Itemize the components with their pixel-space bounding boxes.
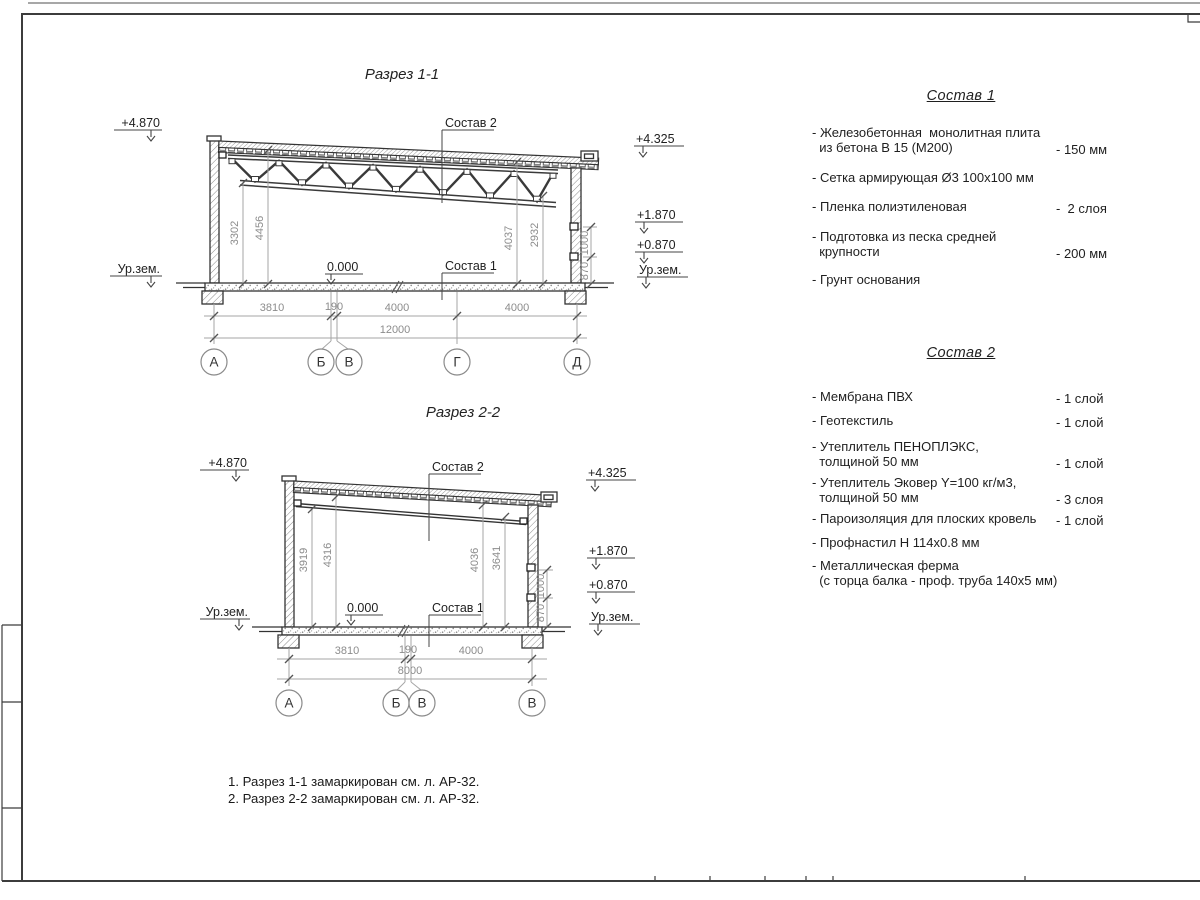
vdim-3302: 3302 [229, 221, 241, 245]
comp2-item5-value: - 1 слой [1056, 514, 1110, 529]
sostav1-label-2: Состав 1 [432, 601, 484, 615]
vdim-1000-2: 1000 [535, 574, 547, 598]
section-1-1-title: Разрез 1-1 [365, 66, 439, 83]
sostav2-label-2: Состав 2 [432, 460, 484, 474]
roof-assembly-2 [293, 481, 551, 507]
comp2-item3-value: - 1 слой [1056, 457, 1110, 472]
vdim-870-2: 870 [535, 604, 547, 622]
elev-r2: +0.870 [637, 238, 676, 252]
elev-r2-2: +0.870 [589, 578, 628, 592]
hdim-190-2: 190 [399, 644, 417, 656]
section-2-2: Разрез 2-2 [200, 404, 640, 716]
ground-left-label-2: Ур.зем. [206, 605, 248, 619]
horizontal-dims-1-1: 3810 190 4000 4000 12000 А Б В Г Д [201, 292, 590, 375]
hdim-4000b: 4000 [505, 302, 529, 314]
list-item: - Геотекстиль - 1 слой [812, 414, 1110, 430]
list-item: - Утеплитель ПЕНОПЛЭКС, толщиной 50 мм -… [812, 440, 1110, 471]
comp1-item5-name: - Грунт основания [812, 273, 1110, 288]
vdim-4456: 4456 [254, 216, 266, 240]
elev-r1-2: +1.870 [589, 544, 628, 558]
list-item: - Железобетонная монолитная плита из бет… [812, 126, 1110, 157]
comp2-item1-value: - 1 слой [1056, 392, 1110, 407]
ground-right-label: Ур.зем. [639, 263, 681, 277]
grid-letter-b: Б [317, 355, 326, 370]
vdim-1000: 1000 [579, 231, 591, 255]
list-item: - Утеплитель Эковер Y=100 кг/м3, толщино… [812, 476, 1110, 507]
comp2-item6-name: - Профнастил Н 114x0.8 мм [812, 536, 1110, 551]
list-item: - Сетка армирующая Ø3 100x100 мм [812, 171, 1110, 187]
list-item: - Металлическая ферма (с торца балка - п… [812, 559, 1110, 590]
elev-tl-2: +4.870 [208, 456, 247, 470]
hdim-3810-2: 3810 [335, 645, 359, 657]
elev-r1: +1.870 [637, 208, 676, 222]
grid-bubbles-2-2 [276, 690, 545, 716]
list-item: - Пароизоляция для плоских кровель - 1 с… [812, 512, 1110, 528]
grid-letter-v2-2: В [527, 696, 536, 711]
vdim-4316: 4316 [322, 543, 334, 567]
grid-letter-g: Г [453, 355, 461, 370]
comp1-item4-value: - 200 мм [1056, 247, 1110, 262]
section-1-1-building [176, 136, 614, 304]
vdim-870: 870 [579, 262, 591, 280]
comp2-item7-name: - Металлическая ферма (с торца балка - п… [812, 559, 1110, 588]
elev-tl: +4.870 [121, 116, 160, 130]
comp1-item2-name: - Сетка армирующая Ø3 100x100 мм [812, 171, 1110, 186]
list-item: - Подготовка из песка средней крупности … [812, 230, 1110, 261]
zero-level-label-2: 0.000 [347, 601, 378, 615]
vdim-4037: 4037 [503, 226, 515, 250]
section-2-2-title: Разрез 2-2 [426, 404, 501, 421]
grid-letter-d: Д [572, 355, 581, 370]
grid-letter-v: В [344, 355, 353, 370]
comp2-item2-value: - 1 слой [1056, 416, 1110, 431]
sostav2-label: Состав 2 [445, 116, 497, 130]
horizontal-dims-2-2: 3810 190 4000 8000 А Б В В [276, 636, 547, 716]
hdim-12000: 12000 [380, 324, 411, 336]
section-1-1: Разрез 1-1 [110, 66, 688, 375]
grid-letter-b-2: Б [392, 696, 401, 711]
note-1: 1. Разрез 1-1 замаркирован см. л. АР-32. [228, 773, 479, 791]
list-item: - Грунт основания [812, 273, 1110, 289]
hdim-4000a: 4000 [385, 302, 409, 314]
list-item: - Профнастил Н 114x0.8 мм [812, 536, 1110, 552]
drawing-sheet: Разрез 1-1 [0, 0, 1200, 900]
hdim-3810: 3810 [260, 302, 284, 314]
elevation-marks-2-2: +4.870 Ур.зем. +4.325 +1.870 +0.870 Ур.з… [200, 456, 640, 635]
grid-letter-a: А [209, 355, 218, 370]
comp1-item1-value: - 150 мм [1056, 143, 1110, 158]
list-item: - Пленка полиэтиленовая - 2 слоя [812, 200, 1110, 216]
list-item: - Мембрана ПВХ - 1 слой [812, 390, 1110, 406]
vdim-4036: 4036 [469, 548, 481, 572]
comp2-title: Состав 2 [812, 345, 1110, 361]
sostav1-label: Состав 1 [445, 259, 497, 273]
grid-letter-v1-2: В [417, 696, 426, 711]
assembly-labels-1-1: Состав 2 Состав 1 [442, 116, 497, 300]
note-2: 2. Разрез 2-2 замаркирован см. л. АР-32. [228, 790, 479, 808]
grid-letter-a-2: А [284, 696, 293, 711]
elev-tr-2: +4.325 [588, 466, 627, 480]
hdim-4000-2: 4000 [459, 645, 483, 657]
comp2-item4-value: - 3 слоя [1056, 493, 1110, 508]
vdim-2932: 2932 [529, 223, 541, 247]
ground-right-label-2: Ур.зем. [591, 610, 633, 624]
grid-bubbles-1-1 [201, 349, 590, 375]
zero-level-label: 0.000 [327, 260, 358, 274]
roof-assembly [218, 141, 598, 170]
hdim-8000: 8000 [398, 665, 422, 677]
vdim-3919: 3919 [298, 548, 310, 572]
comp1-title: Состав 1 [812, 88, 1110, 104]
vdim-3641: 3641 [491, 546, 503, 570]
elevation-marks-1-1: +4.870 Ур.зем. +4.325 +1.870 +0.870 Ур.з… [110, 116, 688, 288]
comp1-item3-value: - 2 слоя [1056, 202, 1110, 217]
ground-left-label: Ур.зем. [118, 262, 160, 276]
elev-tr: +4.325 [636, 132, 675, 146]
hdim-190: 190 [325, 301, 343, 313]
